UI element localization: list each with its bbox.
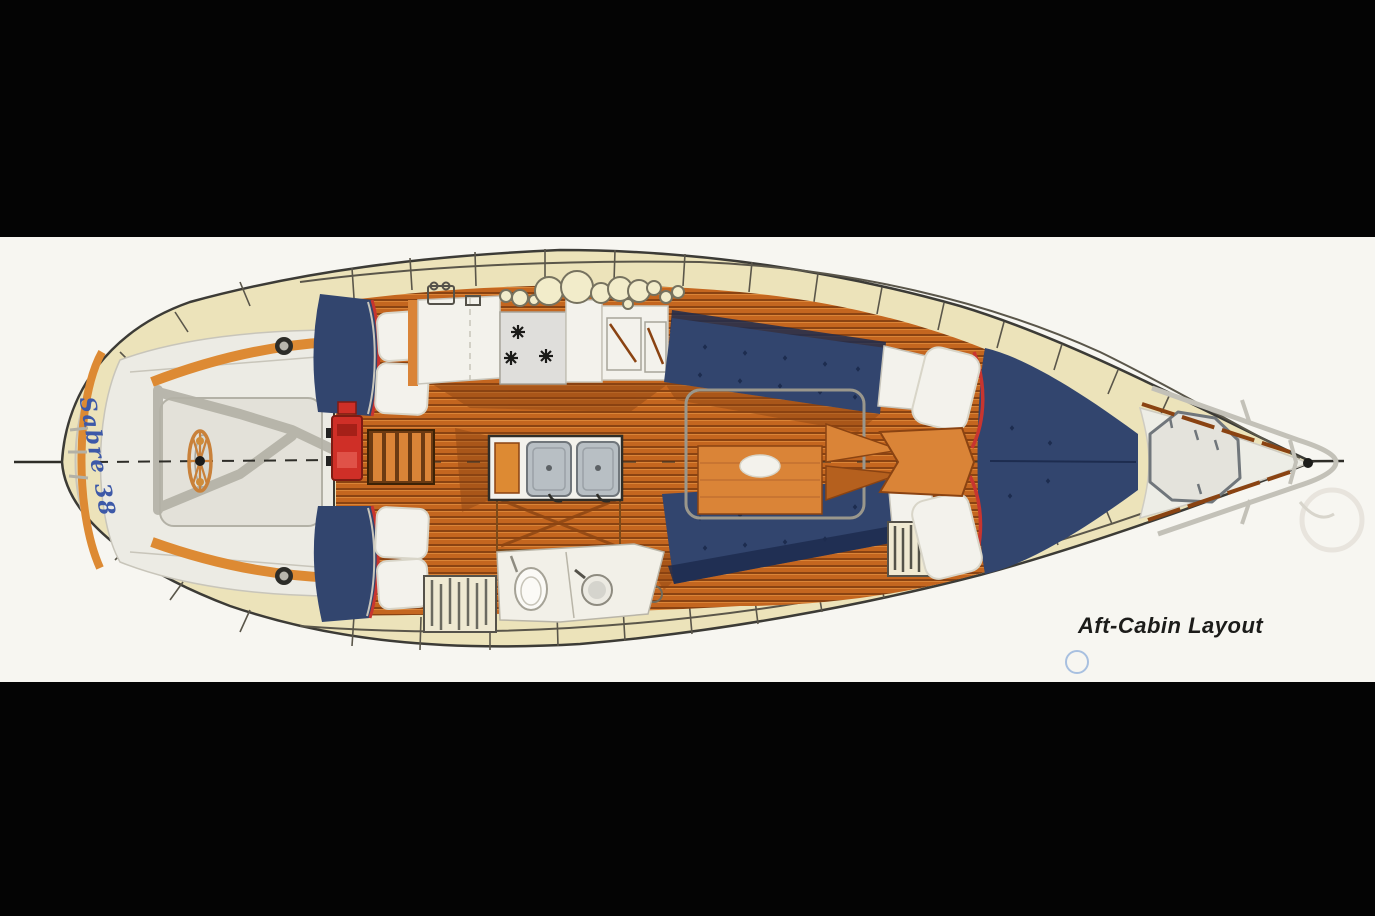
icebox (602, 306, 668, 380)
stove-burner-1 (511, 325, 525, 339)
winch-port (275, 337, 293, 355)
photo-frame-bottom (0, 682, 1375, 916)
stem-fitting (1303, 458, 1313, 468)
winch-starboard (275, 567, 293, 585)
cutting-board (495, 443, 519, 493)
stove-burner-2 (504, 351, 518, 365)
companionway-steps (368, 430, 434, 484)
galley-sink-island (489, 436, 622, 501)
aft-berth-stbd-pillow-1 (375, 507, 430, 560)
aft-berth-stbd-pillow-2 (376, 558, 429, 609)
nav-chart-table (418, 296, 500, 384)
aft-berth-port-cushion (313, 294, 378, 416)
galley-counter (566, 300, 602, 382)
caption-label: Aft-Cabin Layout (1077, 613, 1264, 638)
stove (500, 312, 566, 384)
v-berth-seam (990, 461, 1136, 462)
stove-burner-3 (539, 349, 553, 363)
hanging-locker-louvers (424, 576, 496, 632)
table-inlay (740, 455, 780, 477)
nav-table-wood-edge (408, 300, 418, 386)
scanned-brochure-photo: Sabre 38 Aft-Cabin Layout (0, 0, 1375, 916)
aft-berth-stbd-cushion (314, 506, 378, 622)
photo-frame-top (0, 0, 1375, 237)
steering-wheel-icon (189, 431, 211, 491)
